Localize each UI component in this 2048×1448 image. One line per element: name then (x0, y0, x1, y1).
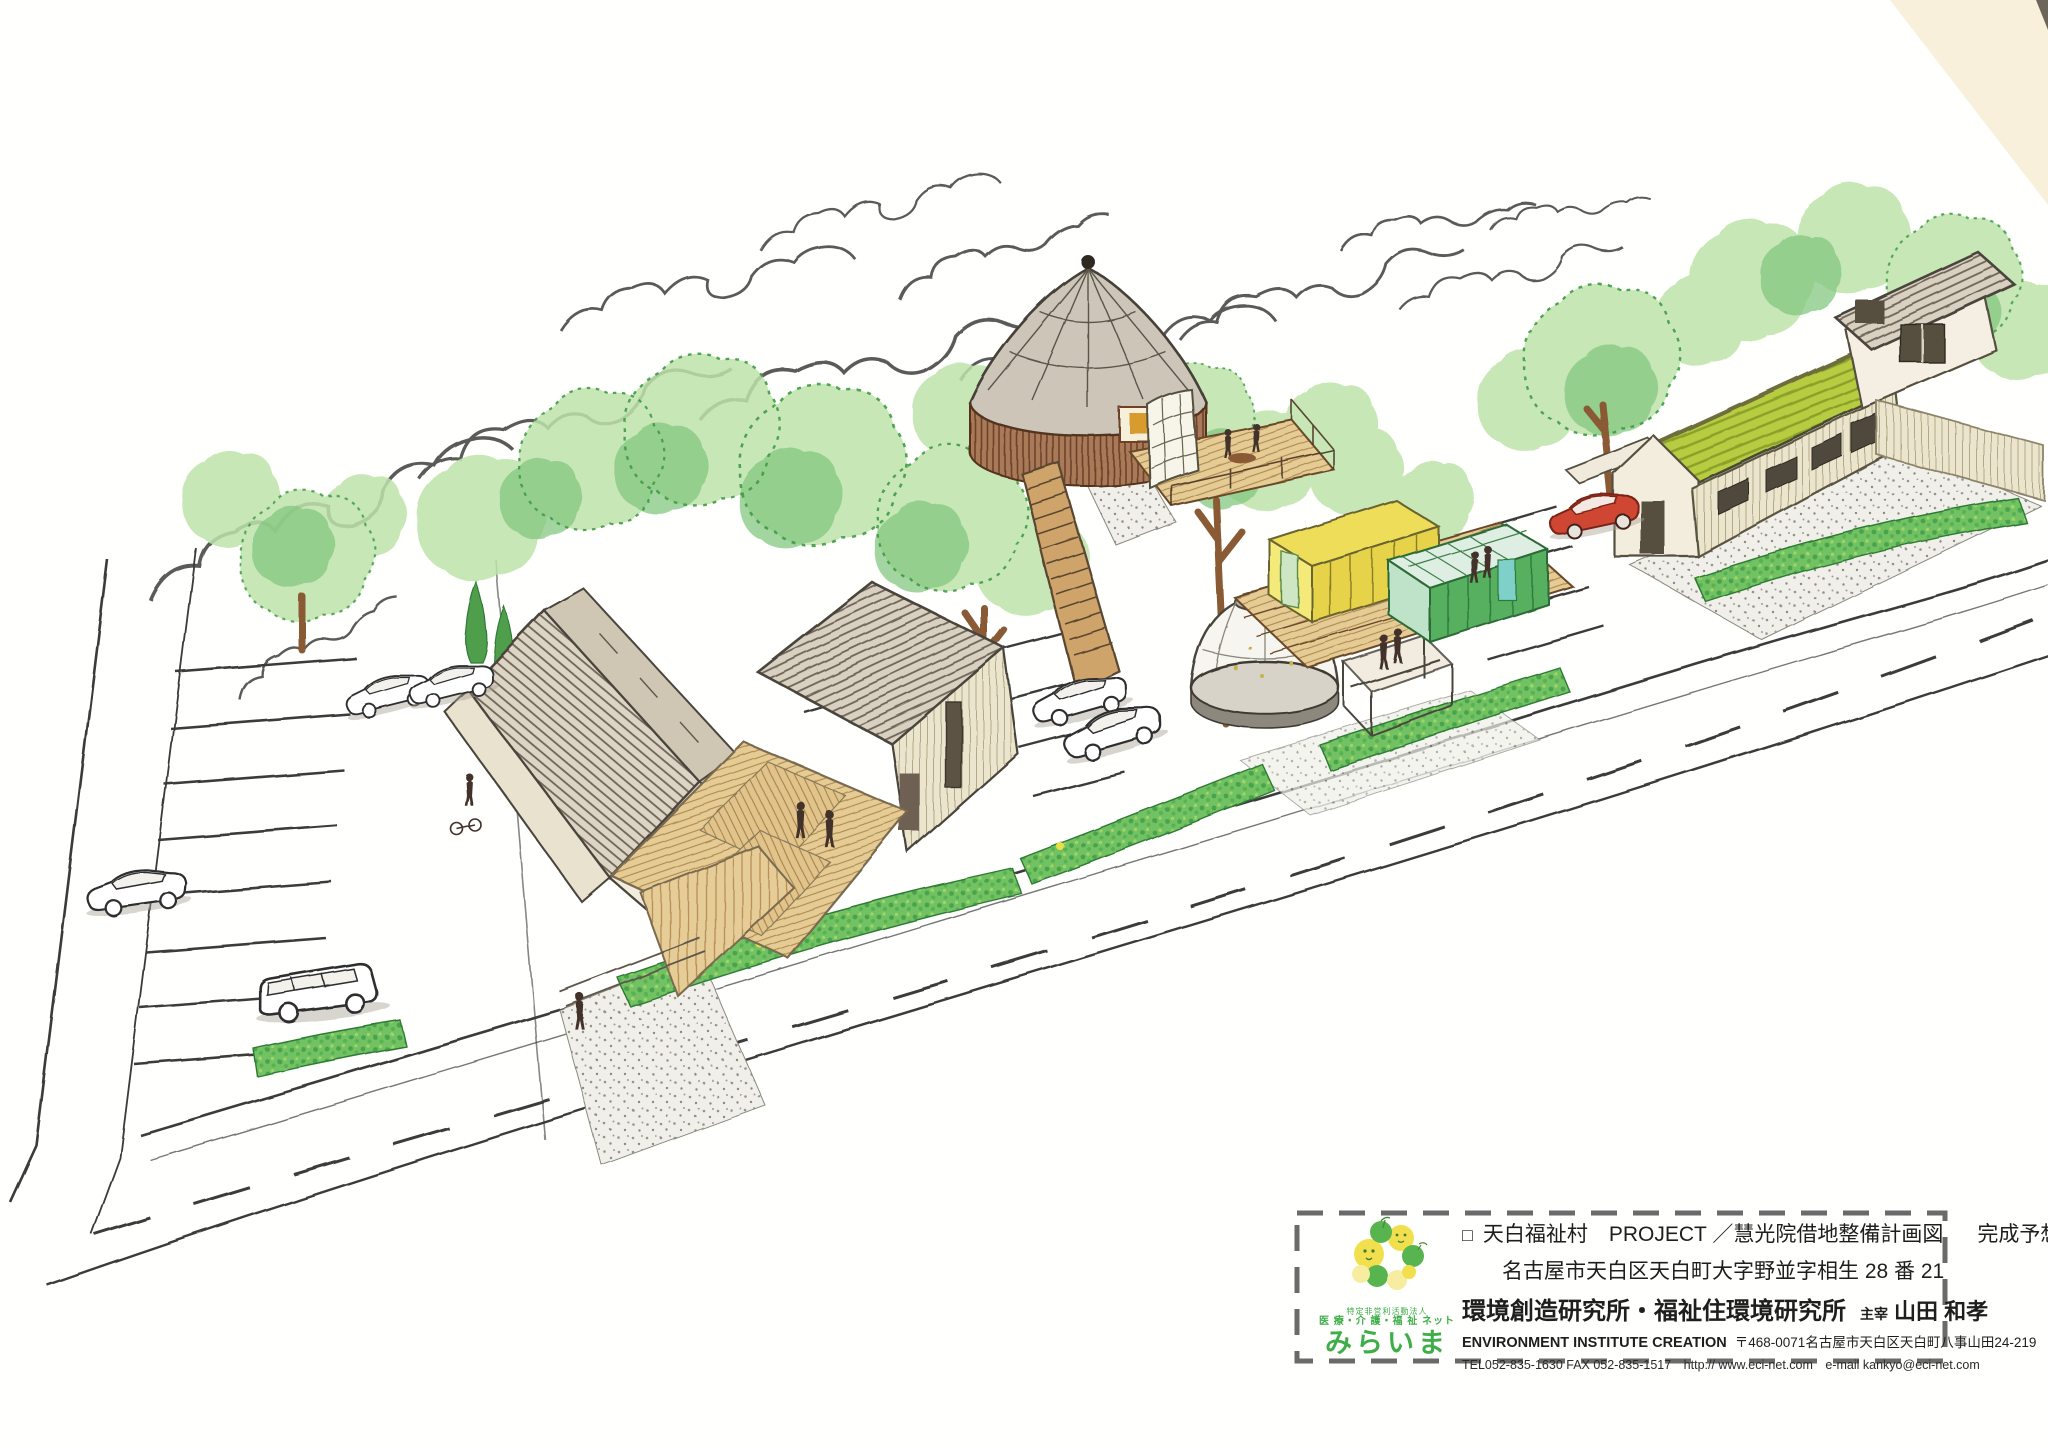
end-door (1640, 500, 1664, 554)
project-title: 天白福祉村 PROJECT ／慧光院借地整備計画図 (1483, 1223, 1943, 1246)
contact-line: TEL052-835-1630 FAX 052-835-1517 http://… (1462, 1354, 1932, 1373)
fruit-ring-logo-icon (1339, 1216, 1435, 1304)
project-title-line: □天白福祉村 PROJECT ／慧光院借地整備計画図完成予想図 (1462, 1218, 1932, 1248)
organization: 環境創造研究所・福祉住環境研究所 (1462, 1298, 1846, 1325)
pavilion-finial (1081, 255, 1095, 269)
logo-npo-net: 医 療・介 護・福 祉 ネット (1316, 1316, 1458, 1328)
scan-paper-tint (1890, 0, 2048, 205)
right-house-window (946, 702, 961, 788)
postal-address: 〒468-0071名古屋市天白区天白町八事山田24-219 (1735, 1335, 2037, 1350)
logo-name: みらいま (1316, 1328, 1458, 1358)
organization-line: 環境創造研究所・福祉住環境研究所主宰山田 和孝 (1462, 1291, 1932, 1326)
drawing-type: 完成予想図 (1977, 1223, 2048, 1246)
logo-npo-type: 特定非営利活動法人 (1316, 1307, 1458, 1316)
main-road (47, 560, 2048, 1285)
site-address: 名古屋市天白区天白町大字野並字相生 28 番 21 (1462, 1255, 1932, 1285)
checkbox-square-icon: □ (1462, 1225, 1473, 1245)
mirai-ma-logo: 特定非営利活動法人 医 療・介 護・福 祉 ネット みらいま (1316, 1216, 1458, 1358)
title-block: 特定非営利活動法人 医 療・介 護・福 祉 ネット みらいま □天白福祉村 PR… (1294, 1210, 1948, 1364)
white-van-parking (252, 961, 391, 1027)
title-block-text: □天白福祉村 PROJECT ／慧光院借地整備計画図完成予想図 名古屋市天白区天… (1462, 1218, 1932, 1373)
pavilion-trellis-panel (1148, 390, 1198, 488)
right-house-door (900, 774, 920, 832)
white-sedan-west-road (82, 864, 194, 921)
principal-name: 山田 和孝 (1894, 1299, 1988, 1324)
organization-en: ENVIRONMENT INSTITUTE CREATION (1462, 1335, 1727, 1351)
scanned-site-sketch-page: 特定非営利活動法人 医 療・介 護・福 祉 ネット みらいま □天白福祉村 PR… (0, 0, 2048, 1448)
principal-label: 主宰 (1860, 1306, 1888, 1322)
organization-en-line: ENVIRONMENT INSTITUTE CREATION〒468-0071名… (1462, 1331, 1932, 1351)
